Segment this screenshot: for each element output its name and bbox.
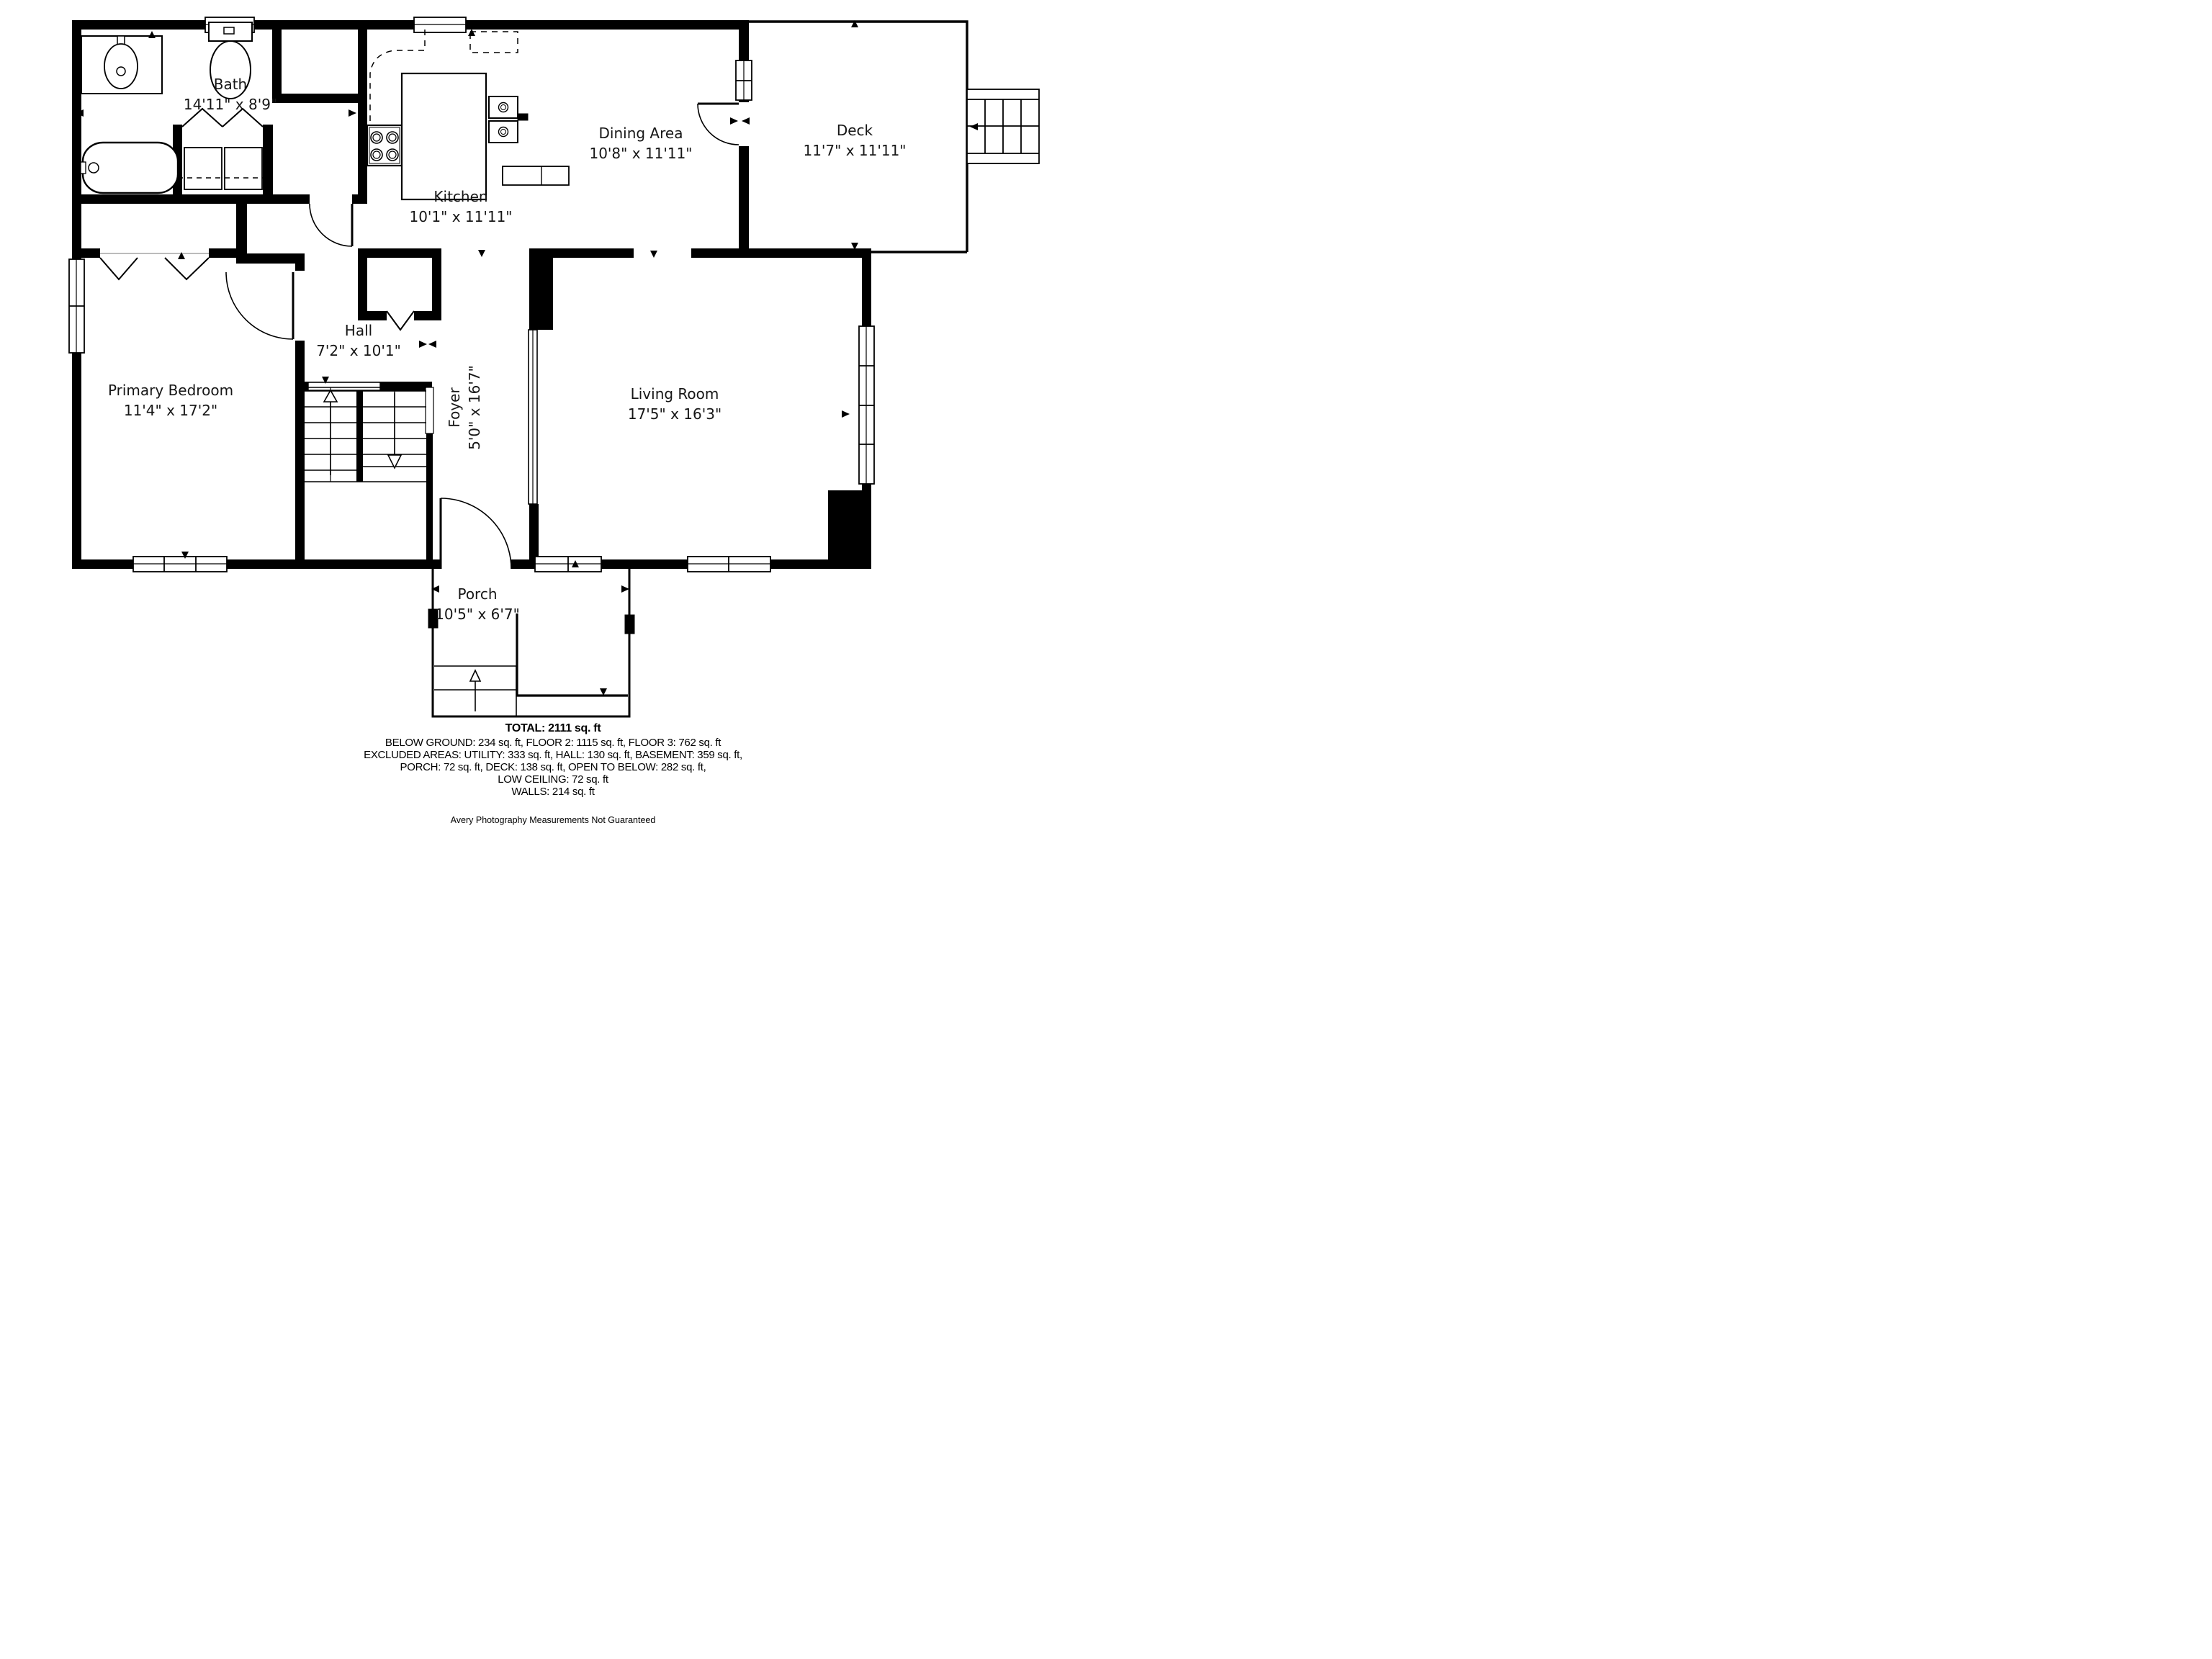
window-living-right — [859, 326, 874, 484]
window-kitchen-top — [414, 17, 466, 32]
room-dims: 11'7" x 11'11" — [803, 140, 906, 161]
room-name: Porch — [435, 584, 520, 604]
room-label-foyer: Foyer 5'0" x 16'7" — [444, 365, 485, 450]
room-name: Dining Area — [589, 123, 692, 143]
room-name: Foyer — [444, 365, 464, 450]
window-bedroom-left — [69, 259, 84, 353]
marker-right-icon — [730, 117, 738, 125]
foyer-living-railing — [529, 330, 537, 504]
marker-up-icon — [468, 29, 475, 36]
deck-door — [698, 104, 739, 145]
marker-right-icon — [842, 410, 850, 418]
window-foyer-bottom — [535, 557, 601, 572]
vanity-sink — [81, 36, 162, 94]
bedroom-door — [226, 272, 293, 339]
kitchen-fixtures — [367, 30, 569, 199]
room-name: Hall — [316, 320, 401, 341]
summary-line: BELOW GROUND: 234 sq. ft, FLOOR 2: 1115 … — [0, 737, 1106, 749]
floor-plan-page: Bath 14'11" x 8'9" Kitchen 10'1" x 11'11… — [0, 0, 1106, 829]
room-dims: 10'8" x 11'11" — [589, 143, 692, 163]
room-dims: 7'2" x 10'1" — [316, 341, 401, 361]
summary-line: EXCLUDED AREAS: UTILITY: 333 sq. ft, HAL… — [0, 749, 1106, 761]
room-dims: 17'5" x 16'3" — [628, 404, 721, 424]
porch-railing — [517, 613, 628, 696]
stairs-down-arrow — [388, 392, 401, 468]
room-label-porch: Porch 10'5" x 6'7" — [435, 584, 520, 624]
marker-right-icon — [621, 585, 629, 593]
stove — [367, 125, 402, 166]
room-dims: 10'1" x 11'11" — [409, 207, 512, 227]
marker-left-icon — [428, 341, 436, 348]
room-label-living-room: Living Room 17'5" x 16'3" — [628, 384, 721, 424]
room-dims: 10'5" x 6'7" — [435, 604, 520, 624]
porch-post-right — [625, 615, 634, 634]
window-dining-right — [736, 60, 752, 100]
disclaimer-footer: Avery Photography Measurements Not Guara… — [0, 815, 1106, 825]
upper-cabinet-dashed-box — [470, 32, 518, 53]
room-name: Deck — [803, 120, 906, 140]
room-name: Living Room — [628, 384, 721, 404]
dining-cabinet — [503, 166, 569, 185]
summary-line: LOW CEILING: 72 sq. ft — [0, 773, 1106, 786]
room-name: Kitchen — [409, 186, 512, 207]
room-dims: 5'0" x 16'7" — [464, 365, 485, 450]
room-dims: 14'11" x 8'9" — [184, 94, 277, 114]
room-label-hall: Hall 7'2" x 10'1" — [316, 320, 401, 361]
room-label-kitchen: Kitchen 10'1" x 11'11" — [409, 186, 512, 227]
summary-line: WALLS: 214 sq. ft — [0, 786, 1106, 798]
kitchen-peninsula-counter — [402, 73, 486, 199]
window-living-bottom — [688, 557, 770, 572]
room-name: Primary Bedroom — [108, 380, 233, 400]
marker-down-icon — [478, 250, 485, 257]
room-name: Bath — [184, 74, 277, 94]
bathtub — [81, 143, 178, 193]
room-label-dining: Dining Area 10'8" x 11'11" — [589, 123, 692, 163]
area-summary: TOTAL: 2111 sq. ft BELOW GROUND: 234 sq.… — [0, 721, 1106, 798]
summary-line: PORCH: 72 sq. ft, DECK: 138 sq. ft, OPEN… — [0, 761, 1106, 773]
marker-up-icon — [148, 31, 156, 38]
total-area: TOTAL: 2111 sq. ft — [0, 721, 1106, 736]
kitchen-sink — [489, 96, 528, 143]
room-label-bath: Bath 14'11" x 8'9" — [184, 74, 277, 114]
stairs-foyer-opening — [426, 387, 433, 433]
room-label-deck: Deck 11'7" x 11'11" — [803, 120, 906, 161]
room-label-primary-bedroom: Primary Bedroom 11'4" x 17'2" — [108, 380, 233, 421]
bath-closet-cabinets — [178, 148, 268, 189]
staircase — [305, 387, 433, 482]
bedroom-closet-bifold-doors — [100, 258, 209, 279]
bath-door — [310, 204, 352, 246]
window-bedroom-bottom — [133, 557, 227, 572]
marker-down-icon — [650, 251, 657, 258]
marker-right-icon — [349, 109, 356, 117]
stairs-hall-opening — [308, 382, 380, 390]
stairs-up-arrow — [324, 390, 337, 475]
marker-right-icon — [419, 341, 427, 348]
room-dims: 11'4" x 17'2" — [108, 400, 233, 421]
porch-steps — [434, 666, 516, 716]
